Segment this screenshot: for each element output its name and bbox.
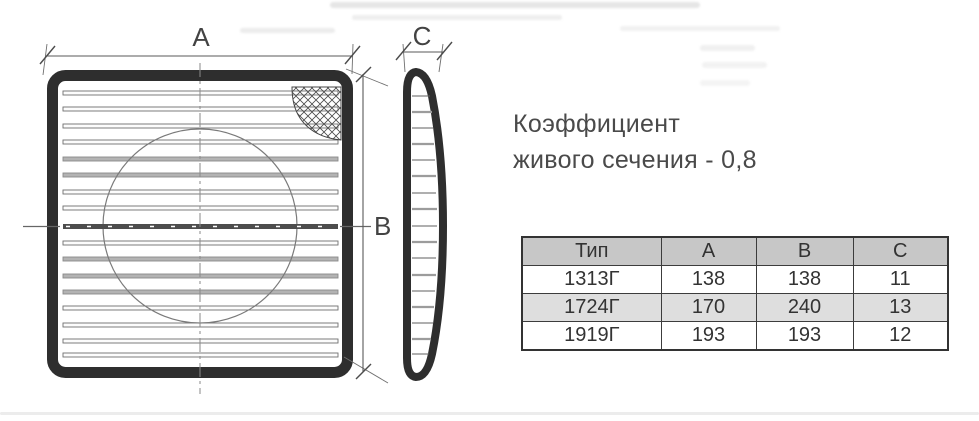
coefficient-caption: Коэффициент живого сечения - 0,8	[513, 106, 757, 178]
table-header-row: Тип A B C	[522, 237, 948, 266]
dimension-c: C	[396, 21, 452, 72]
caption-line-1: Коэффициент	[513, 106, 757, 142]
spec-table: Тип A B C 1313Г 138 138 11 1724Г 170 240…	[521, 236, 949, 351]
cell-b: 138	[756, 266, 853, 294]
cell-b: 193	[756, 322, 853, 351]
header-cell-a: A	[661, 237, 756, 266]
cell-type: 1724Г	[522, 294, 661, 322]
dim-b-label: B	[374, 211, 391, 241]
scan-artifact	[700, 80, 750, 86]
header-cell-c: C	[853, 237, 948, 266]
front-view	[23, 63, 371, 394]
dim-c-label: C	[413, 21, 432, 51]
header-cell-b: B	[756, 237, 853, 266]
cell-type: 1919Г	[522, 322, 661, 351]
scan-artifact	[702, 62, 767, 68]
table-row: 1724Г 170 240 13	[522, 294, 948, 322]
table-row: 1919Г 193 193 12	[522, 322, 948, 351]
cell-c: 12	[853, 322, 948, 351]
side-view	[407, 72, 443, 377]
cell-b: 240	[756, 294, 853, 322]
catalog-page: A B	[0, 0, 979, 421]
cell-type: 1313Г	[522, 266, 661, 294]
scan-artifact	[700, 45, 755, 51]
cell-a: 193	[661, 322, 756, 351]
table-row: 1313Г 138 138 11	[522, 266, 948, 294]
scan-artifact	[620, 26, 780, 31]
cell-c: 11	[853, 266, 948, 294]
grille-technical-drawing: A B	[0, 0, 500, 421]
dim-a-label: A	[192, 22, 210, 52]
cell-c: 13	[853, 294, 948, 322]
cell-a: 138	[661, 266, 756, 294]
header-cell-type: Тип	[522, 237, 661, 266]
caption-line-2: живого сечения - 0,8	[513, 142, 757, 178]
side-profile	[407, 72, 443, 377]
cell-a: 170	[661, 294, 756, 322]
